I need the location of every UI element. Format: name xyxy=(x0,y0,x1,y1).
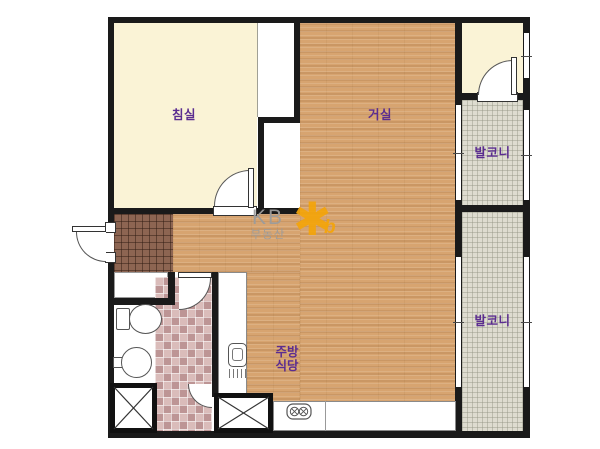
bedroom-door-panel xyxy=(248,168,254,208)
kitchen-sink-basin-icon xyxy=(232,348,243,361)
window-living-balcony-top xyxy=(455,105,462,200)
wall-balcony-divider xyxy=(455,205,530,212)
wall-utility-bottom-right xyxy=(517,93,530,100)
stove-icon xyxy=(286,403,312,420)
balcony-top-label: 발코니 xyxy=(462,146,523,161)
drainboard-line xyxy=(229,369,230,378)
kitchen-dining-label: 주방 식당 xyxy=(262,345,312,373)
toilet-tank-icon xyxy=(116,308,130,330)
drainboard-line xyxy=(245,369,246,378)
bedroom-label: 침실 xyxy=(134,108,234,123)
wall-bedroom-living xyxy=(294,17,300,123)
drainboard-line xyxy=(237,369,238,378)
kb-logo-b-icon: b xyxy=(324,217,336,239)
drainboard-line xyxy=(233,369,234,378)
toilet-bowl-icon xyxy=(129,304,162,334)
wall-alcove-left xyxy=(258,117,264,214)
watermark-brand-sub: 부동산 xyxy=(243,229,293,242)
kitchen-counter-vertical xyxy=(218,272,247,397)
wall-bedroom-bottom-left xyxy=(108,208,213,214)
wall-right-1 xyxy=(523,17,530,33)
counter-divider-line xyxy=(325,401,326,431)
drainboard-line xyxy=(241,369,242,378)
window-balcony-right-outer xyxy=(523,257,530,387)
duct-shaft-left-icon xyxy=(110,383,157,433)
entrance-door-jamb-bottom xyxy=(105,252,116,263)
floor-plan: 침실 거실 발코니 발코니 주방 식당 KB 부동산 ✱ b xyxy=(0,0,600,449)
wall-top xyxy=(108,17,530,23)
balcony-right-label: 발코니 xyxy=(462,314,523,329)
entry-tile-floor xyxy=(114,214,173,273)
kitchen-label-line2: 식당 xyxy=(262,359,312,373)
living-room-label: 거실 xyxy=(330,108,430,123)
kitchen-floor xyxy=(247,272,300,401)
wall-alcove-top xyxy=(258,117,300,123)
wall-bottom xyxy=(108,431,530,438)
window-living-balcony-right xyxy=(455,257,462,387)
washbasin-icon xyxy=(121,347,152,378)
bathroom-door-panel xyxy=(178,272,212,278)
watermark: KB 부동산 xyxy=(243,207,293,242)
window-balcony-top-outer xyxy=(523,110,530,200)
entrance-door-swing-icon xyxy=(76,232,106,262)
bedroom-closet-floor xyxy=(257,23,294,117)
closet-divider-line xyxy=(257,23,258,117)
utility-door-panel xyxy=(511,57,517,95)
wall-left-upper xyxy=(108,17,114,223)
watermark-brand: KB xyxy=(243,207,293,229)
entrance-door-panel xyxy=(72,226,106,232)
wall-living-balcony-1 xyxy=(455,17,462,105)
duct-shaft-right-icon xyxy=(214,393,273,433)
window-utility-room xyxy=(523,33,530,78)
wall-living-balcony-3 xyxy=(455,387,462,431)
wall-right-4 xyxy=(523,387,530,438)
entrance-door-jamb-top xyxy=(105,222,116,233)
wall-bathroom-left-stub xyxy=(168,272,175,305)
kitchen-label-line1: 주방 xyxy=(262,345,312,359)
wall-utility-bottom-left xyxy=(455,93,478,100)
